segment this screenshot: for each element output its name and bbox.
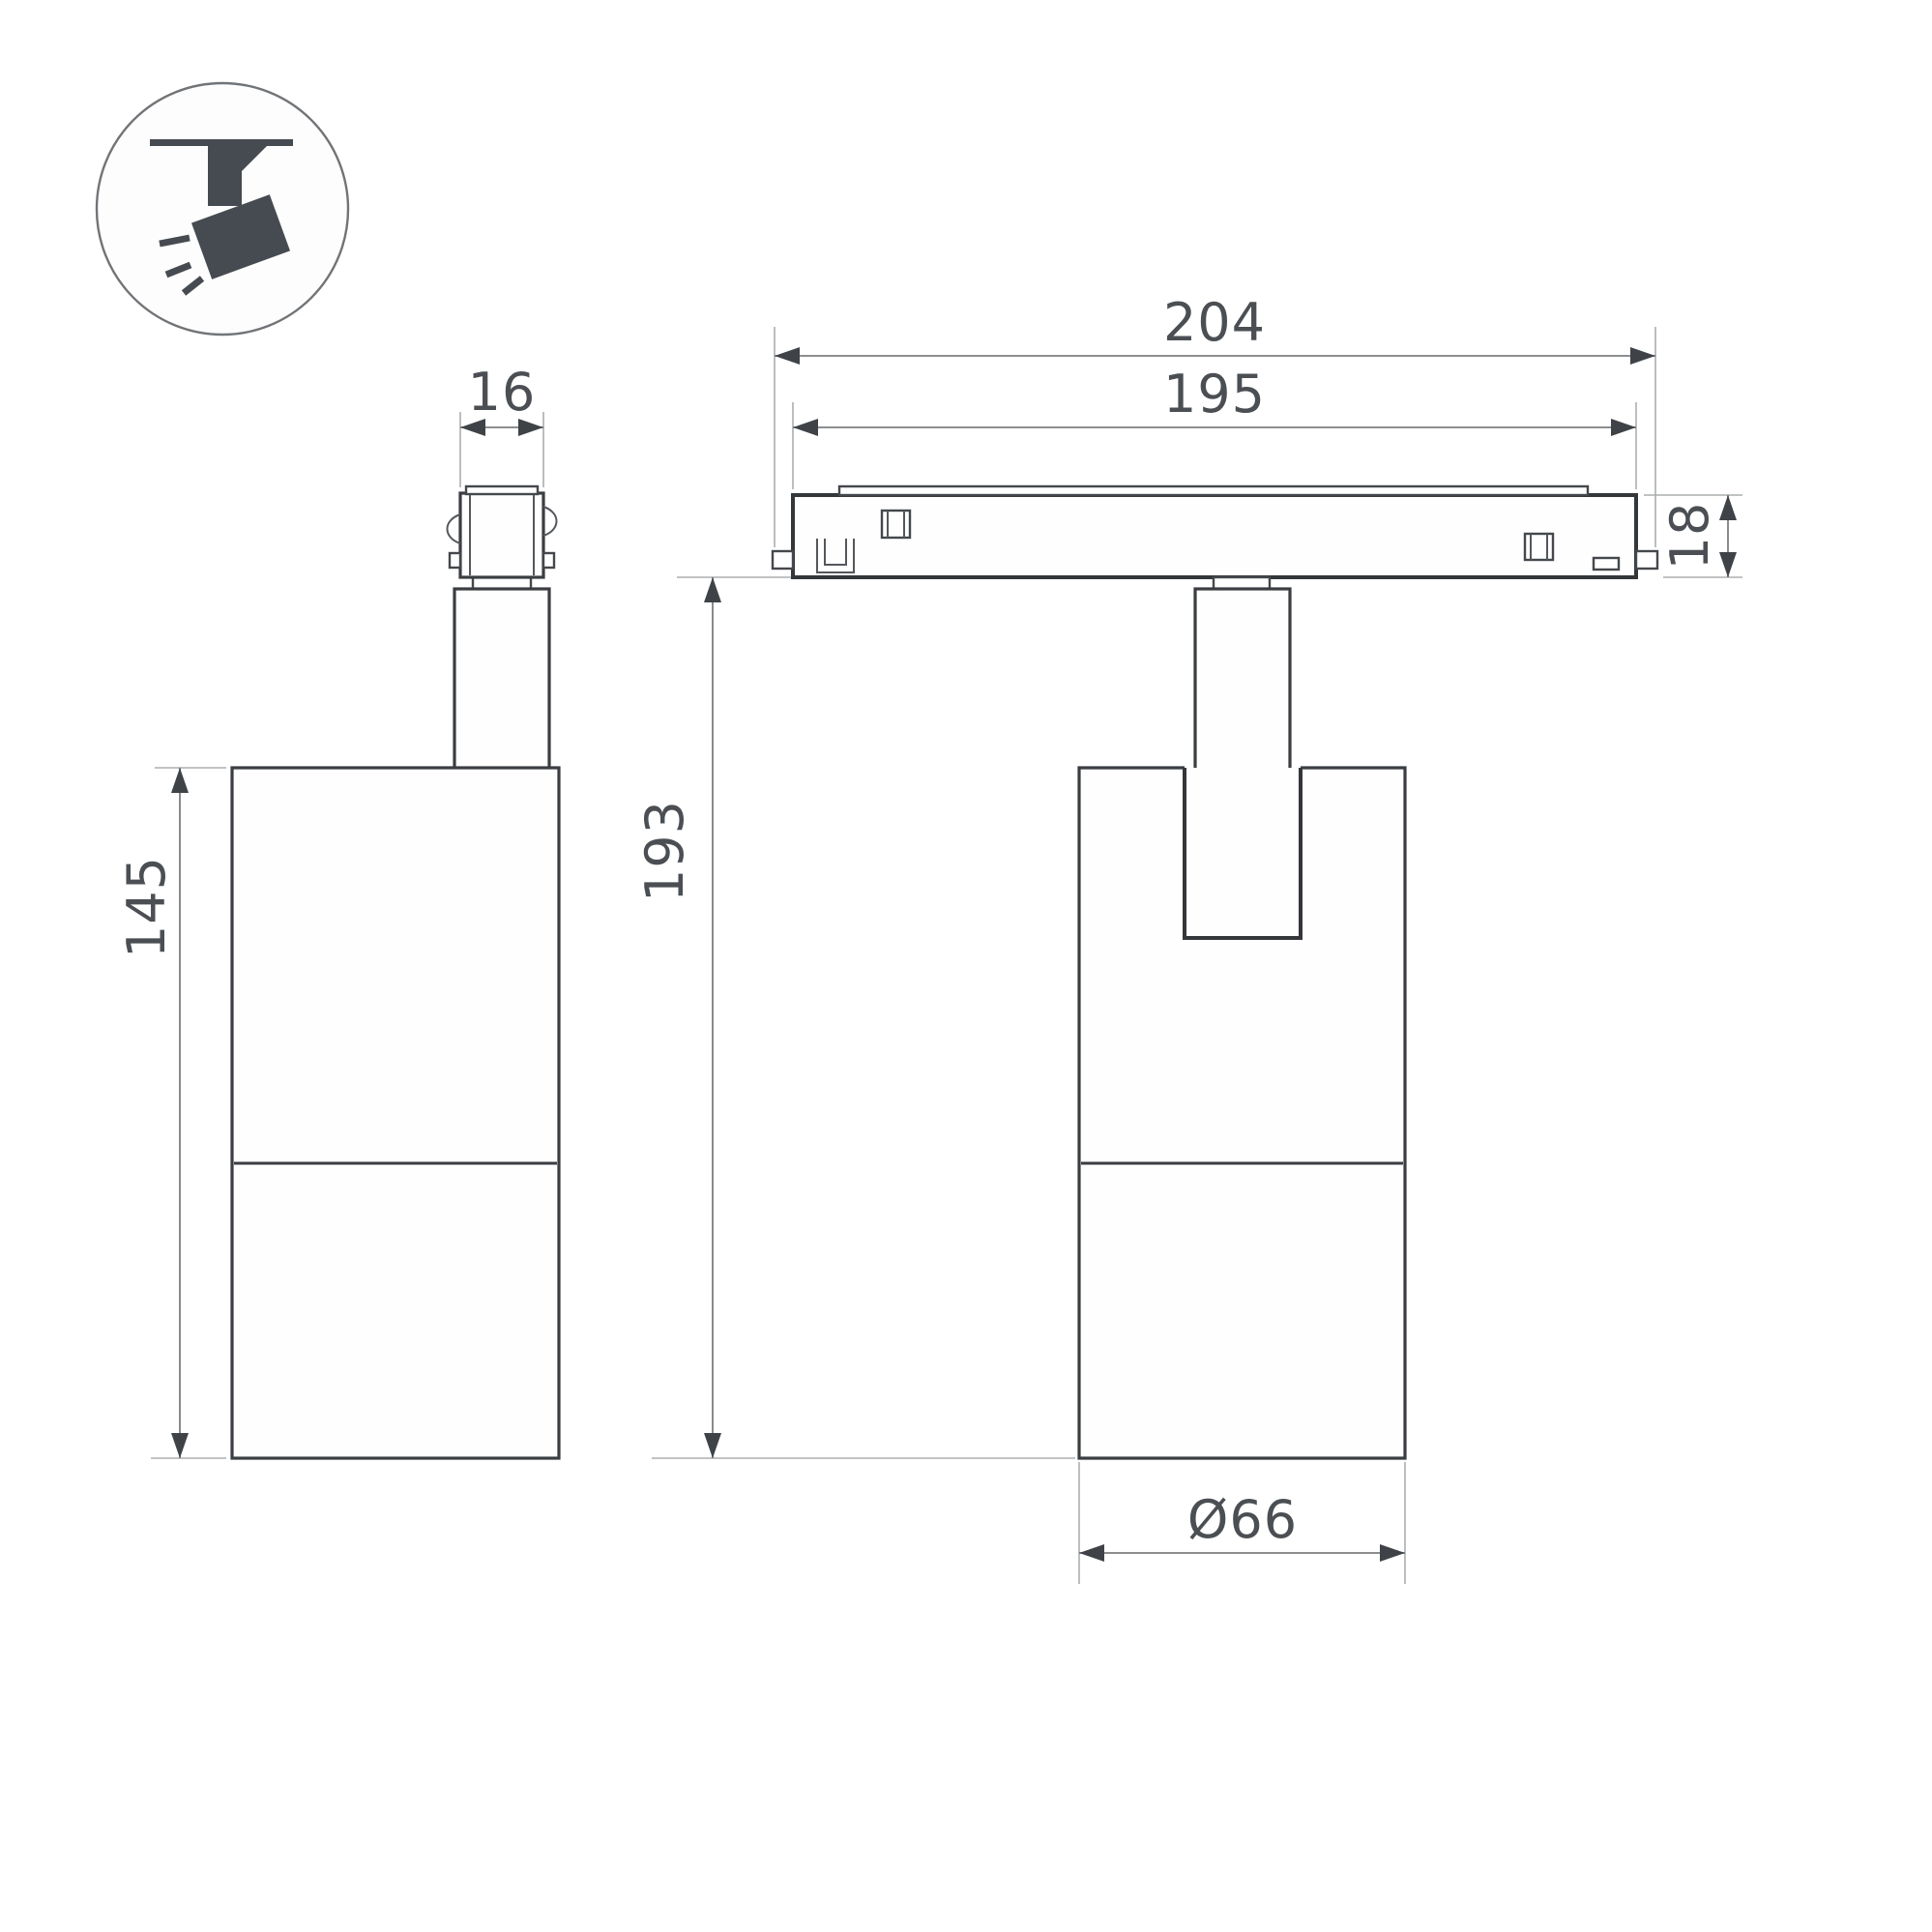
side-adapter-nub-left [450,553,460,568]
front-connector-nub [1214,577,1270,589]
layer-outlines [97,83,1657,1458]
icon-circle [97,83,348,335]
icon-track-bar [150,139,293,146]
dim18-arrow-top [1719,495,1737,520]
dim195-label: 195 [1163,364,1266,424]
side-adapter-lip [466,486,538,494]
dim193-label: 193 [634,800,695,902]
track-slot [1594,558,1619,570]
track-window-left [882,511,910,538]
side-neck [473,577,531,589]
side-adapter-ear-right [543,507,557,536]
side-body [232,768,559,1458]
dim145-arrow-top [171,768,189,793]
side-adapter [460,493,543,577]
dim204-arrow-right [1630,347,1655,365]
technical-drawing-svg: 1614520419518193Ø66 [0,0,1932,1932]
dim204-arrow-left [775,347,800,365]
side-adapter-ear-left [448,514,461,543]
dim193-arrow-bottom [704,1433,721,1458]
dim66-label: Ø66 [1187,1489,1298,1550]
dim18-label: 18 [1659,502,1720,571]
front-fork [1185,768,1301,938]
side-stem [454,589,549,769]
dim195-arrow-left [793,419,818,436]
dim145-arrow-bottom [171,1433,189,1458]
track-tab-left [773,551,793,569]
dim16-label: 16 [468,362,537,423]
technical-drawing-page: 1614520419518193Ø66 [0,0,1932,1932]
track-rail [793,495,1636,577]
dim66-arrow-left [1079,1544,1104,1562]
dim193-arrow-top [704,577,721,602]
dim145-label: 145 [116,856,177,958]
dim195-arrow-right [1611,419,1636,436]
dim66-arrow-right [1380,1544,1405,1562]
side-adapter-nub-right [543,553,554,568]
dim204-label: 204 [1163,292,1266,353]
dim18-arrow-bottom [1719,552,1737,577]
track-rail-lip [839,486,1588,495]
track-window-right [1525,534,1553,560]
track-tab-right [1636,551,1657,569]
